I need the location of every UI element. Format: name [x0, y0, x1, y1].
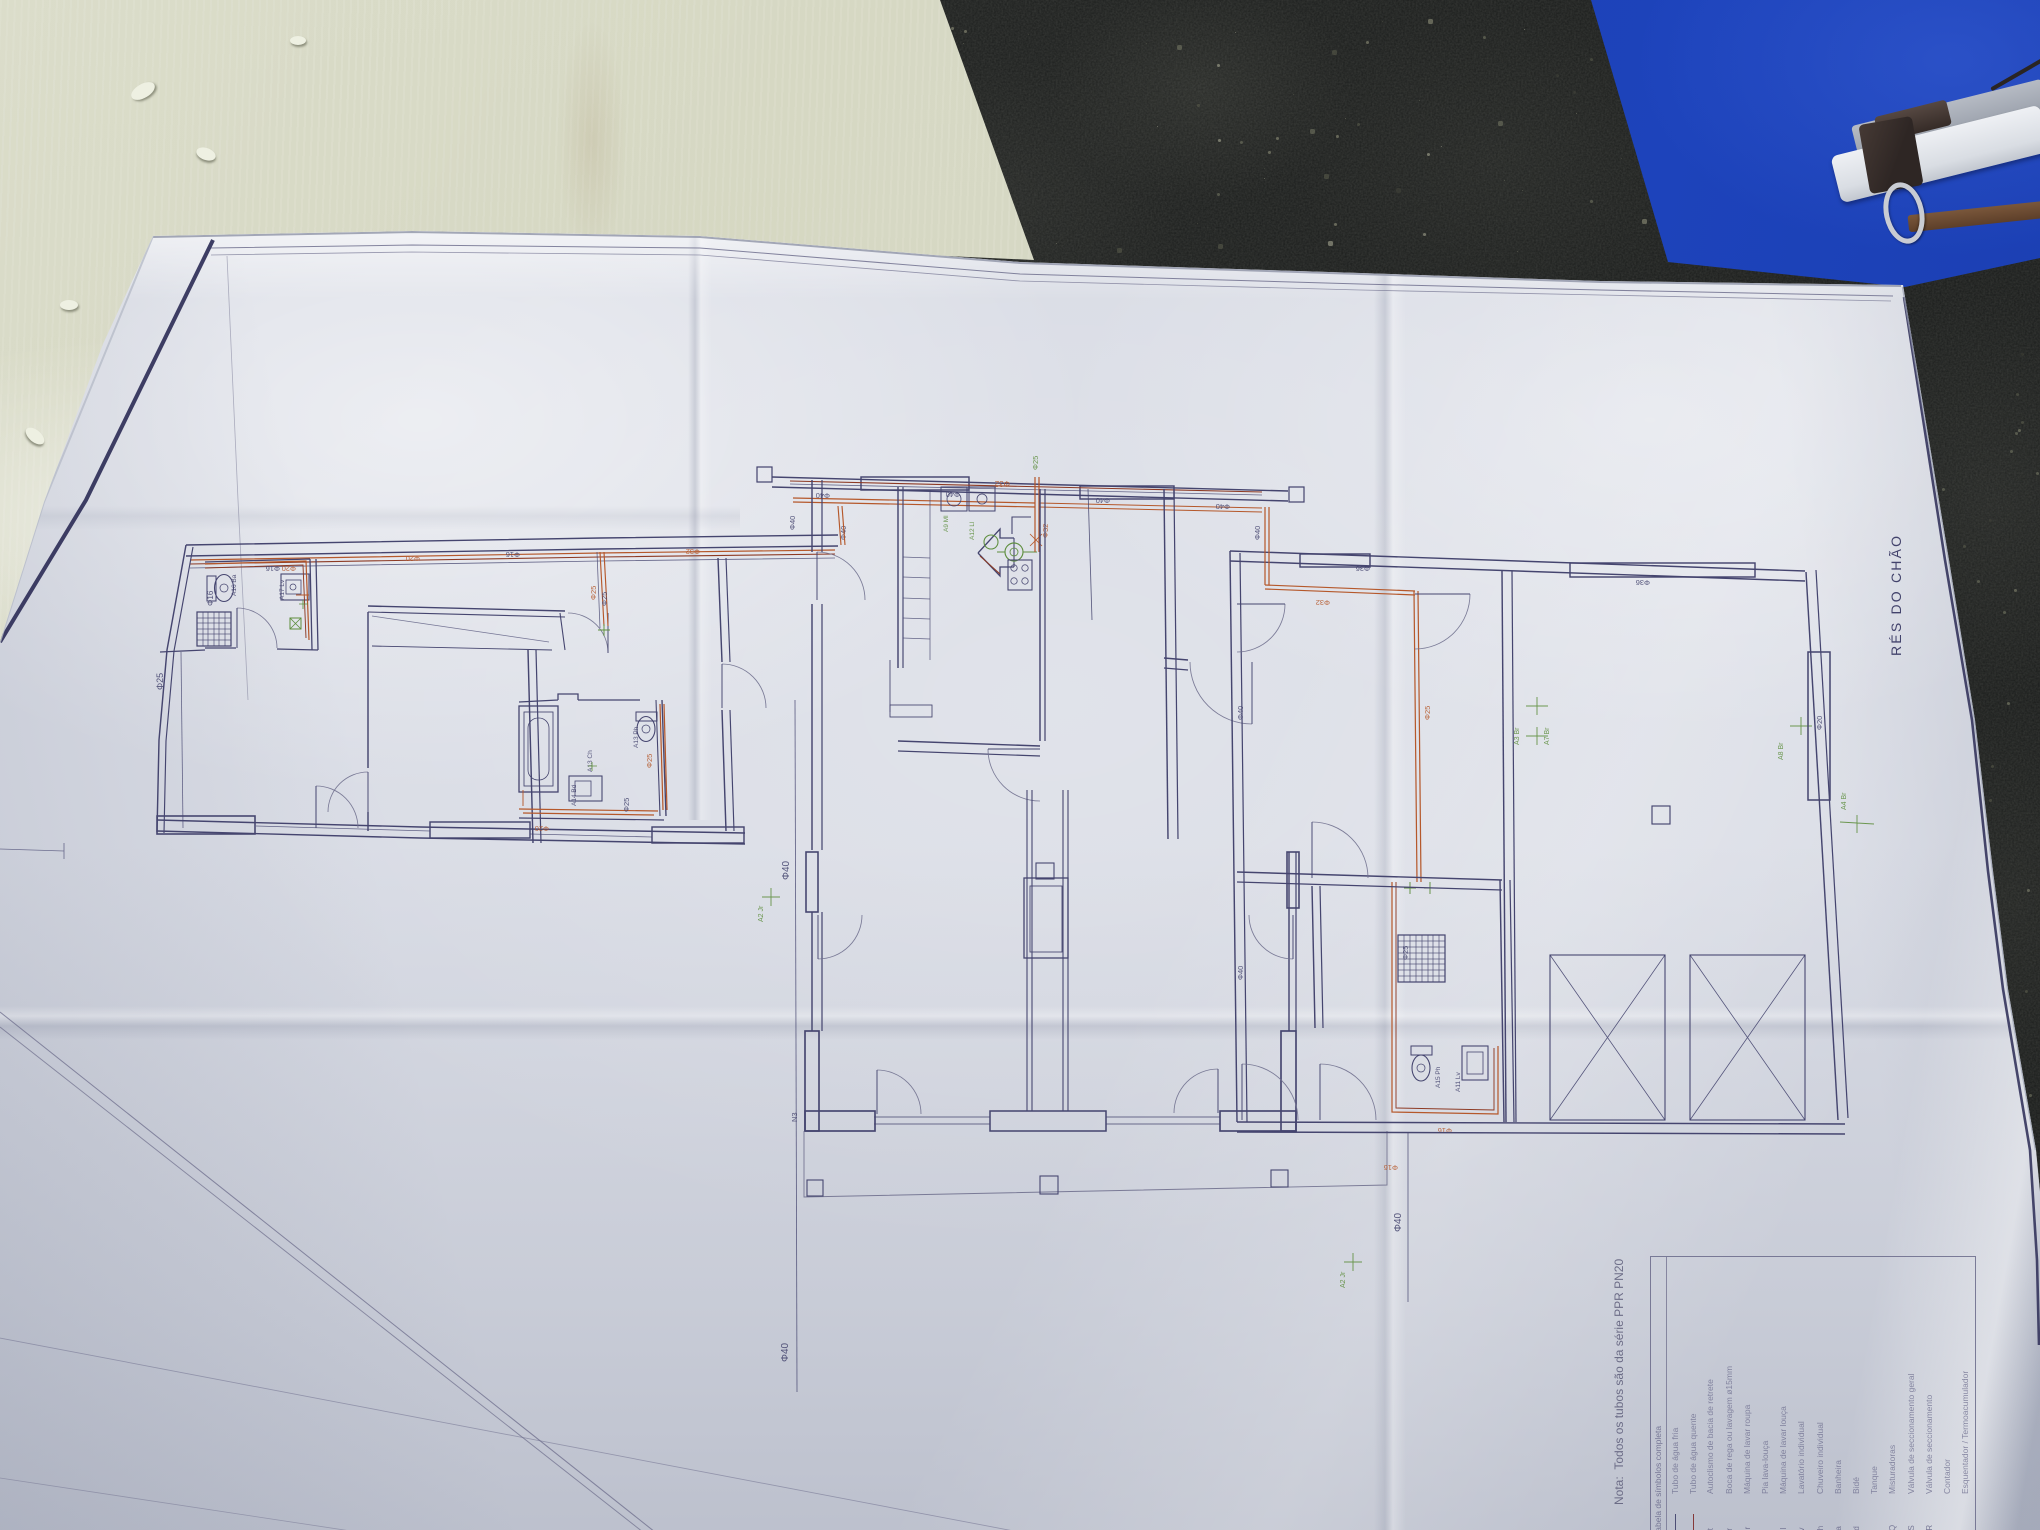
- svg-text:Φ25: Φ25: [645, 754, 654, 768]
- svg-text:A2 Jr: A2 Jr: [1340, 1271, 1347, 1288]
- svg-text:Φ20: Φ20: [406, 554, 420, 563]
- svg-text:Φ20: Φ20: [535, 824, 549, 833]
- svg-text:Φ25: Φ25: [1423, 706, 1432, 720]
- svg-text:Φ25: Φ25: [1031, 456, 1040, 470]
- svg-text:Φ16: Φ16: [1384, 1163, 1398, 1172]
- svg-text:Φ40: Φ40: [1253, 526, 1262, 540]
- svg-text:Φ40: Φ40: [1393, 1212, 1404, 1232]
- svg-text:N3: N3: [790, 1112, 799, 1122]
- svg-text:Φ20: Φ20: [1815, 716, 1824, 730]
- svg-text:Φ16: Φ16: [266, 564, 280, 573]
- svg-text:Φ40: Φ40: [780, 1342, 791, 1362]
- svg-text:A4 Br: A4 Br: [1841, 792, 1848, 810]
- svg-text:Φ40: Φ40: [788, 516, 797, 530]
- svg-text:Φ40: Φ40: [781, 860, 792, 880]
- svg-text:A3 Br: A3 Br: [1514, 727, 1521, 745]
- svg-text:A9 Ml: A9 Ml: [943, 515, 950, 532]
- svg-text:Φ25: Φ25: [600, 592, 609, 606]
- svg-text:A13 Ch: A13 Ch: [587, 750, 594, 772]
- svg-text:A8 Br: A8 Br: [1778, 742, 1785, 760]
- svg-text:Φ40: Φ40: [1236, 966, 1245, 980]
- svg-text:Φ40: Φ40: [816, 491, 830, 500]
- svg-text:Φ32: Φ32: [1316, 598, 1330, 607]
- svg-text:Φ20: Φ20: [282, 564, 296, 573]
- svg-text:A11 Lv: A11 Lv: [1455, 1071, 1462, 1092]
- svg-text:A17 Lv: A17 Lv: [279, 579, 286, 600]
- svg-text:Φ25: Φ25: [589, 586, 598, 600]
- svg-text:A2 Jr: A2 Jr: [758, 905, 765, 922]
- svg-text:A16 Ba: A16 Ba: [231, 574, 238, 596]
- svg-text:Φ32: Φ32: [686, 547, 700, 556]
- svg-text:RÉS DO CHÃO: RÉS DO CHÃO: [1888, 534, 1904, 656]
- svg-text:A15 Ph: A15 Ph: [1435, 1066, 1442, 1088]
- svg-text:Φ16: Φ16: [506, 550, 520, 559]
- svg-text:Φ16: Φ16: [206, 590, 215, 606]
- svg-text:Φ40: Φ40: [1216, 502, 1230, 511]
- svg-text:Φ32: Φ32: [994, 479, 1010, 488]
- svg-text:Φ40: Φ40: [946, 490, 960, 499]
- svg-text:A7 Br: A7 Br: [1544, 727, 1551, 745]
- svg-text:A14 Bd: A14 Bd: [571, 784, 578, 806]
- svg-text:Φ36: Φ36: [1356, 564, 1370, 573]
- svg-text:Φ36: Φ36: [1636, 578, 1650, 587]
- svg-text:A12 Ll: A12 Ll: [969, 521, 976, 540]
- svg-text:Φ16: Φ16: [1438, 1126, 1452, 1135]
- svg-text:A13 Ph: A13 Ph: [633, 726, 640, 748]
- svg-text:Φ40: Φ40: [1096, 496, 1110, 505]
- svg-text:Φ25: Φ25: [155, 673, 165, 690]
- svg-text:Φ25: Φ25: [622, 798, 631, 812]
- svg-text:Φ40: Φ40: [1236, 706, 1245, 720]
